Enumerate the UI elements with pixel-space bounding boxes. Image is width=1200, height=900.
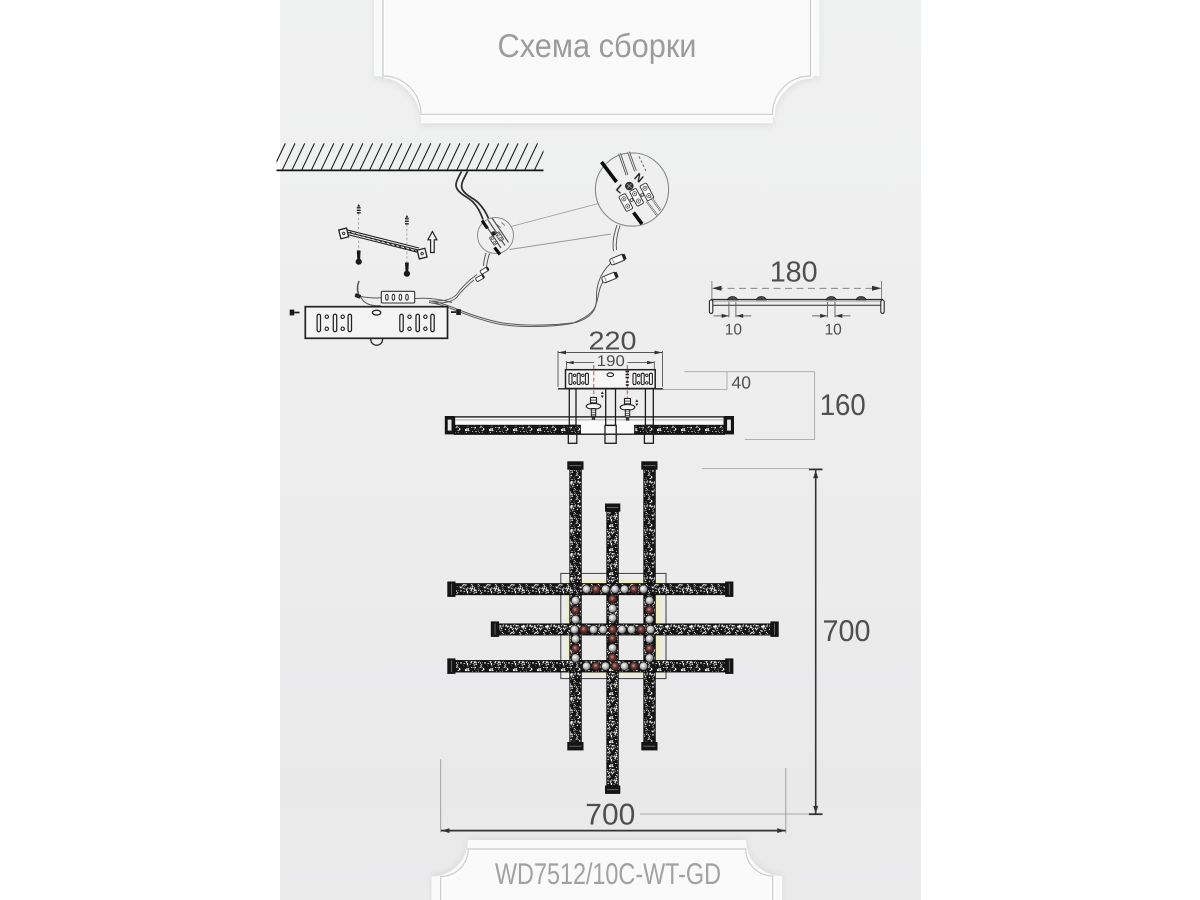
svg-text:Схема сборки: Схема сборки <box>498 27 697 64</box>
svg-text:160: 160 <box>820 389 866 422</box>
svg-text:700: 700 <box>823 615 871 648</box>
svg-text:700: 700 <box>585 799 635 832</box>
svg-text:WD7512/10C-WT-GD: WD7512/10C-WT-GD <box>495 858 721 891</box>
svg-text:190: 190 <box>597 353 625 370</box>
svg-text:40: 40 <box>732 373 752 393</box>
svg-text:180: 180 <box>770 256 818 288</box>
svg-text:220: 220 <box>589 326 637 356</box>
svg-text:10: 10 <box>725 322 743 339</box>
svg-text:10: 10 <box>825 322 843 339</box>
